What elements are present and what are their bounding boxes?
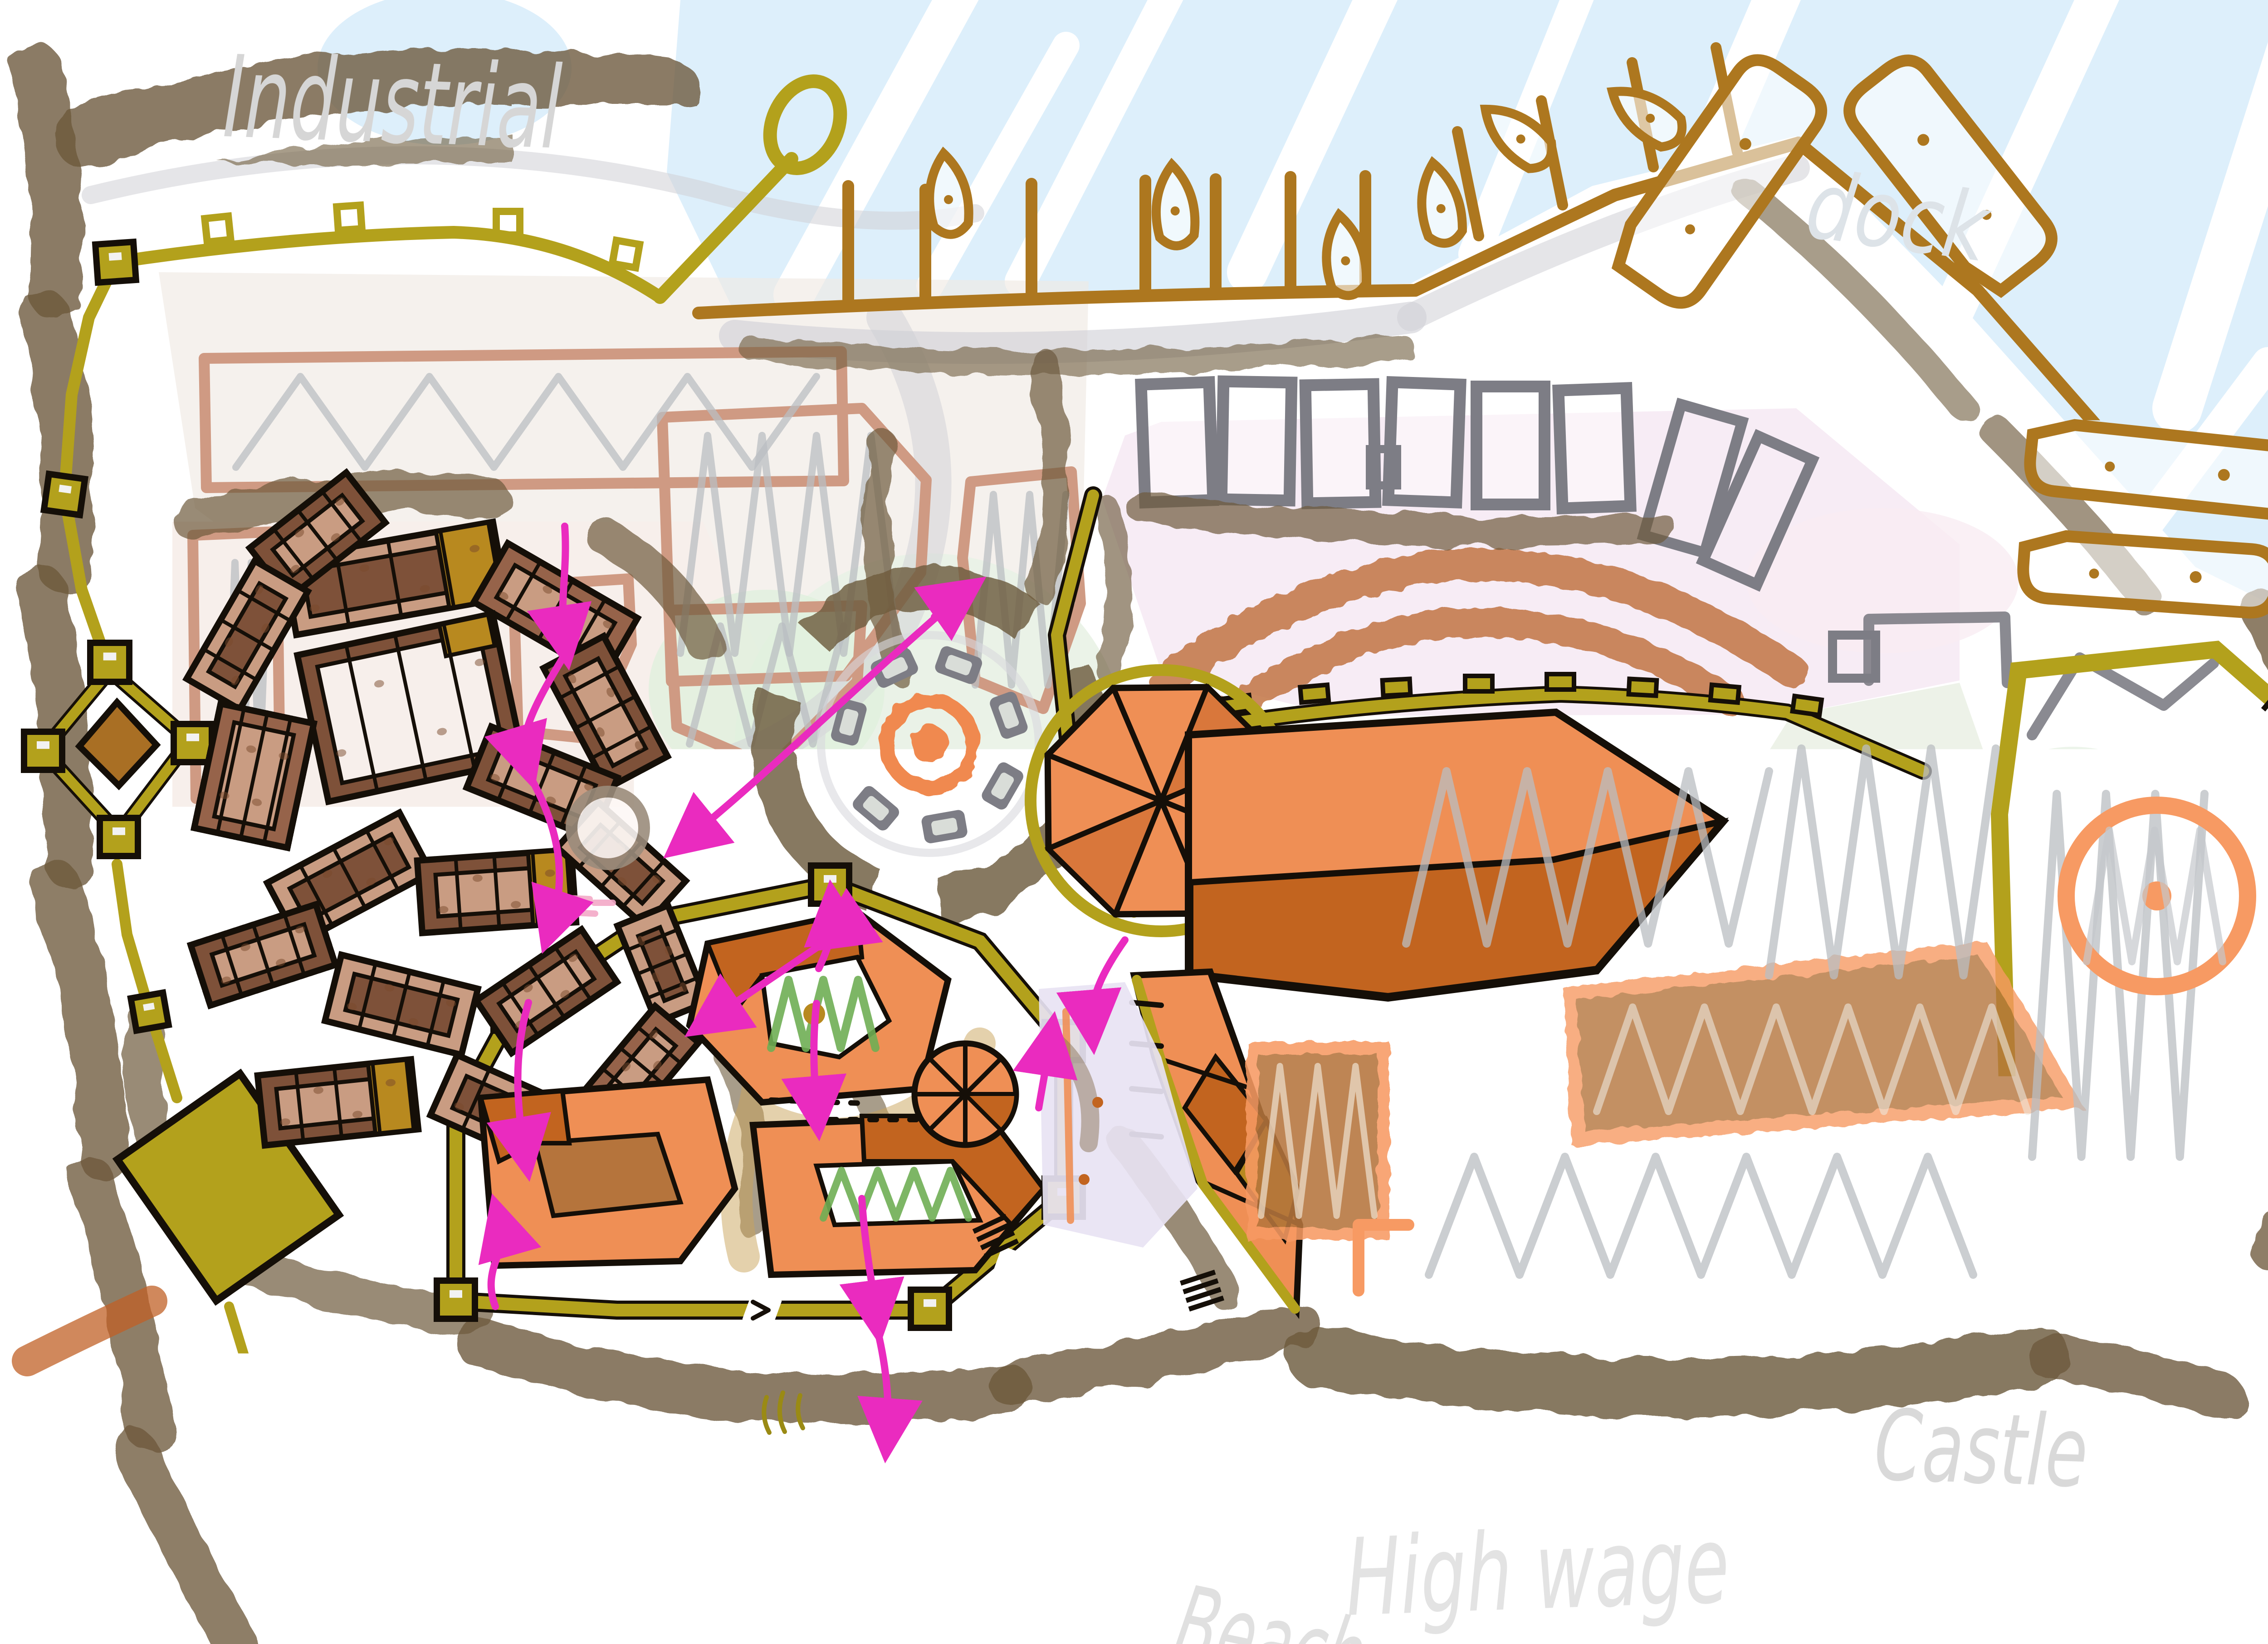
tower-window xyxy=(103,653,117,661)
tower-window xyxy=(186,734,199,741)
tower-body xyxy=(44,474,85,515)
old-town-round-plaza xyxy=(572,792,644,864)
tower-window xyxy=(924,1299,936,1307)
south-wall-black xyxy=(1306,1337,2032,1341)
tower-body xyxy=(437,1281,475,1319)
scrub-14 xyxy=(1315,1356,2041,1388)
scrub-5 xyxy=(136,1452,236,1644)
south-merlon-5 xyxy=(1972,1329,2001,1365)
tower-w-1 xyxy=(131,993,168,1030)
south-wall-orange xyxy=(1302,1302,2041,1307)
merlon-6 xyxy=(1629,679,1657,695)
merlon-7 xyxy=(1711,685,1739,703)
battlement-loop-0 xyxy=(205,216,230,242)
warehouse-5 xyxy=(1559,388,1631,508)
tower-body xyxy=(90,643,129,682)
scrub-22 xyxy=(1107,508,1119,671)
tower-sw-1 xyxy=(274,1454,306,1486)
south-merlon-4 xyxy=(1863,1329,1892,1365)
newtown-tower-4 xyxy=(811,866,849,904)
warehouse-2 xyxy=(1305,384,1376,504)
beach-ladder-pier xyxy=(606,1395,650,1481)
merlon-8 xyxy=(1793,696,1822,715)
scrub-21 xyxy=(1043,363,1055,590)
tower-body xyxy=(811,866,849,904)
block-b-court xyxy=(535,1134,680,1216)
warehouse-0 xyxy=(1141,382,1213,502)
bastion-tower-n xyxy=(90,643,129,682)
merlon-2 xyxy=(1300,685,1329,703)
tower-body xyxy=(100,818,138,856)
bastion-tower-e xyxy=(174,724,212,762)
tower-window xyxy=(37,741,49,749)
court-dot-1 xyxy=(1092,1097,1103,1108)
bastion-tower-w xyxy=(24,732,62,770)
south-merlon-1 xyxy=(1469,1329,1498,1365)
merlon-4 xyxy=(1465,676,1492,691)
route-arrow-0 xyxy=(562,526,565,642)
tower-body xyxy=(95,242,136,283)
south-merlon-0 xyxy=(1337,1329,1366,1365)
battlement-loop-1 xyxy=(337,205,362,230)
scrub-0 xyxy=(36,68,57,295)
longboat-2 xyxy=(2021,533,2268,615)
newtown-tower-0 xyxy=(437,1281,475,1319)
merlon-5 xyxy=(1547,674,1574,690)
label-high-wage: High wage xyxy=(1344,1503,1731,1640)
merlon-3 xyxy=(1383,679,1411,695)
court-dot-2 xyxy=(1079,1174,1090,1185)
tower-window xyxy=(824,875,836,883)
plaza-orange-blob xyxy=(911,725,949,763)
warehouse-1 xyxy=(1222,382,1292,501)
rosette-building xyxy=(914,1043,1016,1145)
old-town-building xyxy=(258,1059,418,1145)
wing-ladder-tick-0 xyxy=(1132,1003,1161,1005)
hand-drawn-city-map: Industrial dock Castle High wage Beach xyxy=(0,0,2268,1644)
tower-window xyxy=(450,1290,462,1298)
tower-body xyxy=(174,724,212,762)
corner-scribble xyxy=(27,1561,191,1633)
label-castle: Castle xyxy=(1872,1388,2089,1509)
newtown-tower-1 xyxy=(911,1290,949,1328)
warehouse-4 xyxy=(1476,387,1545,504)
ship-hull xyxy=(2021,533,2268,615)
tower-body xyxy=(24,732,62,770)
tower-body xyxy=(131,993,168,1030)
bastion-tower-s xyxy=(100,818,138,856)
tower-window xyxy=(109,252,122,261)
route-arrow-9 xyxy=(814,1003,817,1112)
scrub-3 xyxy=(54,885,104,1157)
scrub-16 xyxy=(2263,612,2268,885)
battlement-loop-3 xyxy=(612,240,640,268)
tower-body xyxy=(911,1290,949,1328)
tower-window xyxy=(285,1462,295,1468)
label-industrial: Industrial xyxy=(221,31,564,175)
tower-nw-corner xyxy=(95,242,136,283)
battlement-loop-2 xyxy=(496,211,520,235)
tower-window xyxy=(112,827,125,835)
south-wall-olive xyxy=(1304,1322,2037,1327)
tower-w-2 xyxy=(44,474,85,515)
tower-body xyxy=(274,1454,306,1486)
south-merlon-2 xyxy=(1600,1329,1629,1365)
south-merlon-3 xyxy=(1732,1329,1761,1365)
